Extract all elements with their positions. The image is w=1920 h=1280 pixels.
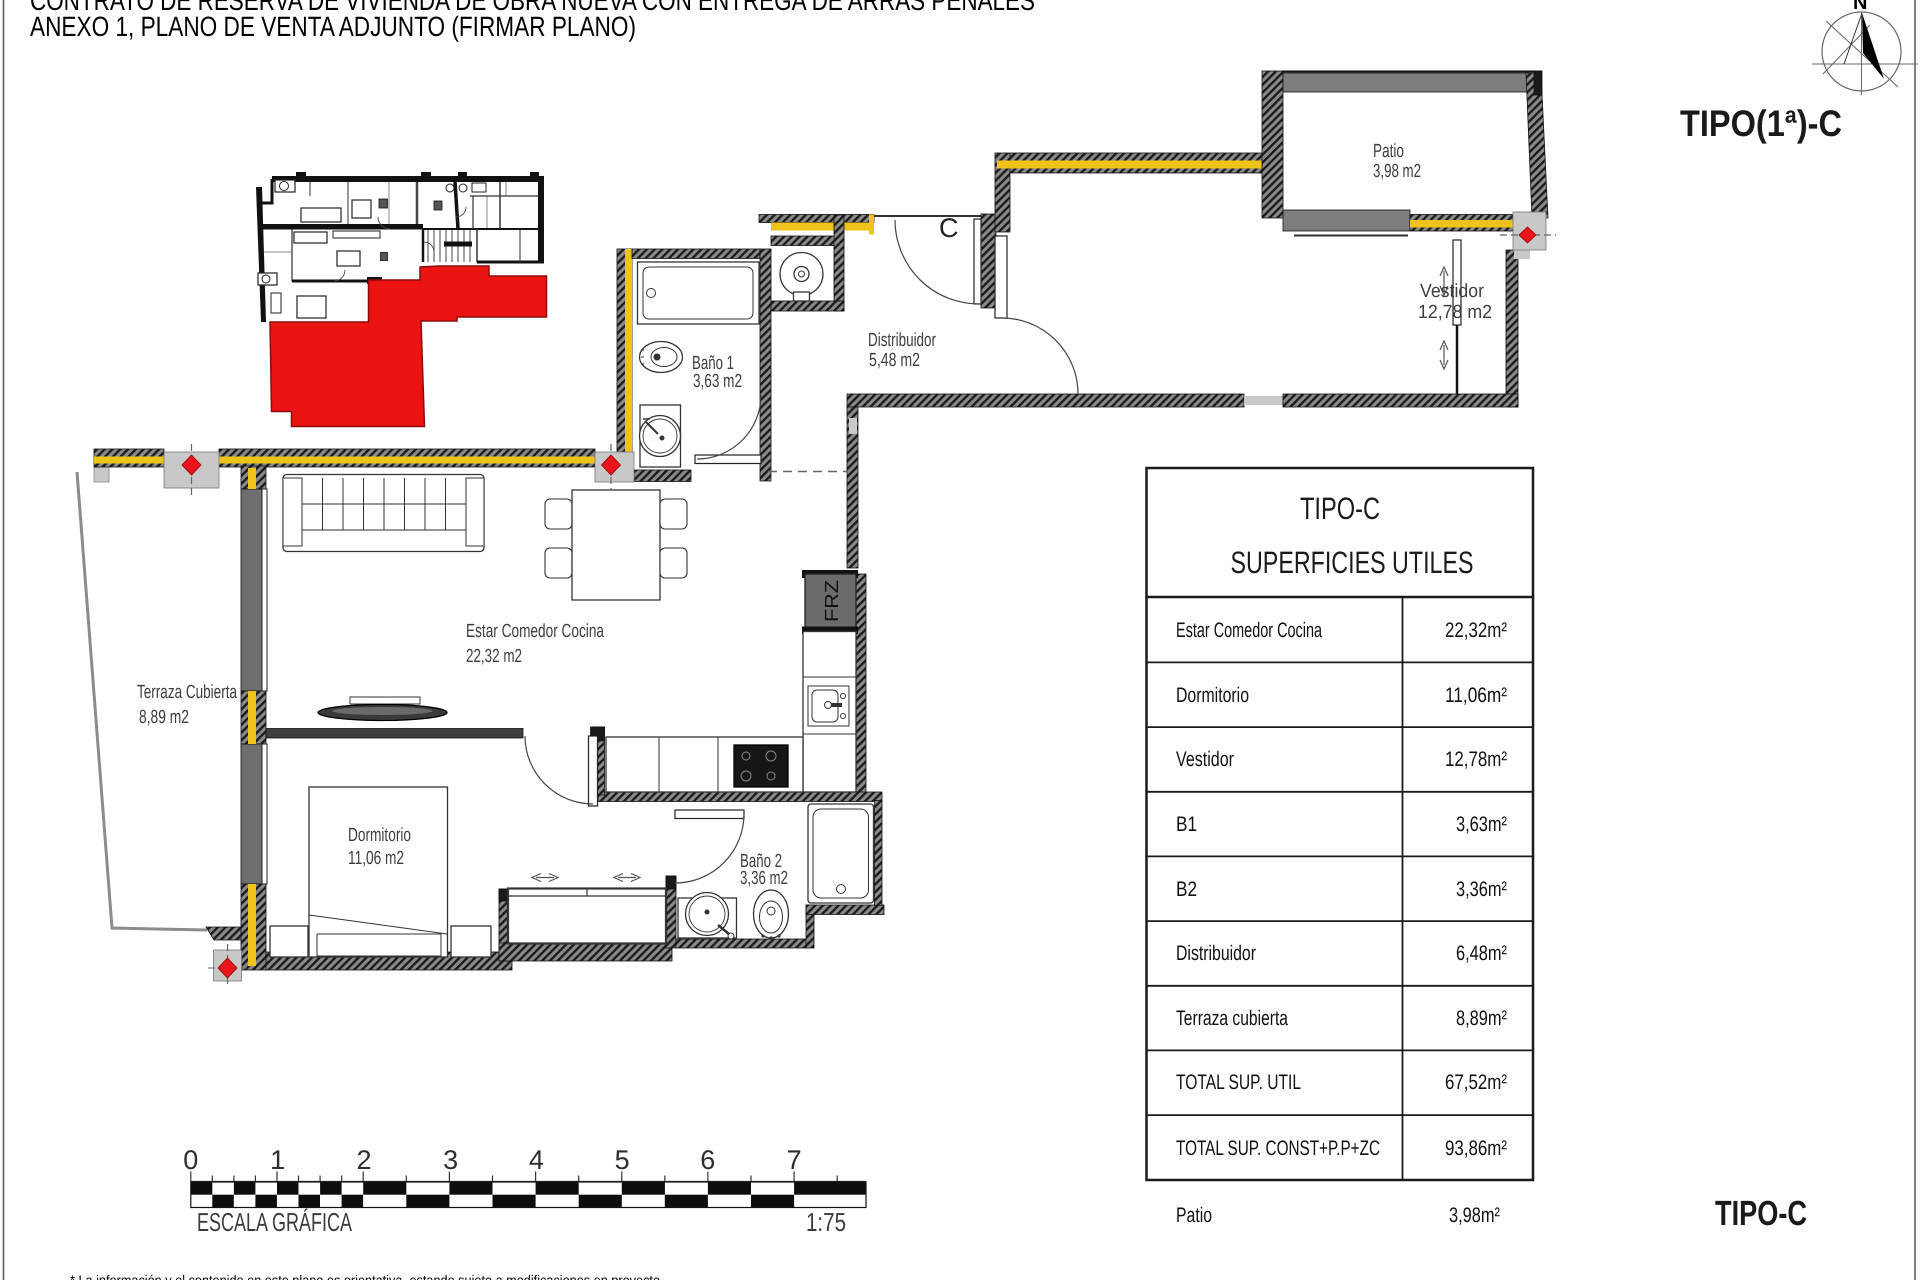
svg-text:Estar Comedor Cocina: Estar Comedor Cocina xyxy=(1176,619,1322,642)
svg-text:3,63m²: 3,63m² xyxy=(1456,813,1507,836)
svg-text:12,78m²: 12,78m² xyxy=(1445,748,1507,771)
svg-text:* La información y el contenid: * La información y el contenido en este … xyxy=(70,1272,660,1280)
svg-text:1:75: 1:75 xyxy=(806,1207,846,1237)
svg-text:C: C xyxy=(939,213,959,243)
svg-text:Terraza cubierta: Terraza cubierta xyxy=(1176,1007,1288,1030)
svg-text:11,06m²: 11,06m² xyxy=(1445,684,1507,707)
svg-text:3,36m²: 3,36m² xyxy=(1456,878,1507,901)
svg-text:FRZ: FRZ xyxy=(822,580,843,622)
svg-text:Estar Comedor Cocina: Estar Comedor Cocina xyxy=(466,621,604,642)
svg-text:Distribuidor: Distribuidor xyxy=(868,330,936,351)
svg-text:6: 6 xyxy=(700,1145,715,1175)
svg-text:Dormitorio: Dormitorio xyxy=(348,825,411,846)
svg-text:TOTAL SUP. CONST+P.P+ZC: TOTAL SUP. CONST+P.P+ZC xyxy=(1176,1137,1380,1160)
svg-text:TIPO-C: TIPO-C xyxy=(1715,1194,1807,1233)
svg-text:3,63 m2: 3,63 m2 xyxy=(693,371,742,392)
svg-text:4: 4 xyxy=(529,1145,544,1175)
svg-text:Dormitorio: Dormitorio xyxy=(1176,684,1249,707)
svg-text:67,52m²: 67,52m² xyxy=(1445,1071,1507,1094)
svg-text:8,89 m2: 8,89 m2 xyxy=(139,707,189,728)
svg-text:ANEXO 1, PLANO DE VENTA ADJUNT: ANEXO 1, PLANO DE VENTA ADJUNTO (FIRMAR … xyxy=(30,11,636,42)
svg-text:5: 5 xyxy=(615,1145,630,1175)
svg-text:2: 2 xyxy=(356,1145,371,1175)
svg-text:TIPO(1ª)-C: TIPO(1ª)-C xyxy=(1680,103,1842,144)
svg-text:3,36 m2: 3,36 m2 xyxy=(740,868,788,889)
svg-text:12,78 m2: 12,78 m2 xyxy=(1418,302,1492,323)
svg-text:Patio: Patio xyxy=(1373,141,1404,162)
svg-text:22,32m²: 22,32m² xyxy=(1445,619,1507,642)
svg-text:SUPERFICIES UTILES: SUPERFICIES UTILES xyxy=(1231,545,1474,580)
svg-text:Terraza Cubierta: Terraza Cubierta xyxy=(137,682,237,703)
svg-text:ESCALA GRÁFICA: ESCALA GRÁFICA xyxy=(197,1207,352,1237)
svg-text:3: 3 xyxy=(443,1145,458,1175)
svg-text:B1: B1 xyxy=(1176,813,1197,836)
svg-text:N: N xyxy=(1853,0,1867,14)
svg-text:TOTAL SUP. UTIL: TOTAL SUP. UTIL xyxy=(1176,1071,1301,1094)
svg-text:11,06 m2: 11,06 m2 xyxy=(348,848,404,869)
svg-text:0: 0 xyxy=(183,1145,198,1175)
svg-text:Distribuidor: Distribuidor xyxy=(1176,942,1256,965)
svg-text:B2: B2 xyxy=(1176,878,1197,901)
svg-text:Patio: Patio xyxy=(1176,1204,1212,1227)
svg-text:7: 7 xyxy=(787,1145,802,1175)
svg-text:Vestidor: Vestidor xyxy=(1176,748,1234,771)
svg-text:3,98 m2: 3,98 m2 xyxy=(1373,161,1421,182)
svg-text:3,98m²: 3,98m² xyxy=(1449,1204,1500,1227)
svg-text:5,48 m2: 5,48 m2 xyxy=(869,350,920,371)
svg-text:8,89m²: 8,89m² xyxy=(1456,1007,1507,1030)
svg-text:1: 1 xyxy=(270,1145,285,1175)
svg-text:93,86m²: 93,86m² xyxy=(1445,1137,1507,1160)
svg-text:6,48m²: 6,48m² xyxy=(1456,942,1507,965)
svg-text:TIPO-C: TIPO-C xyxy=(1300,491,1380,526)
svg-text:22,32 m2: 22,32 m2 xyxy=(466,646,522,667)
svg-text:Vestidor: Vestidor xyxy=(1420,281,1485,302)
